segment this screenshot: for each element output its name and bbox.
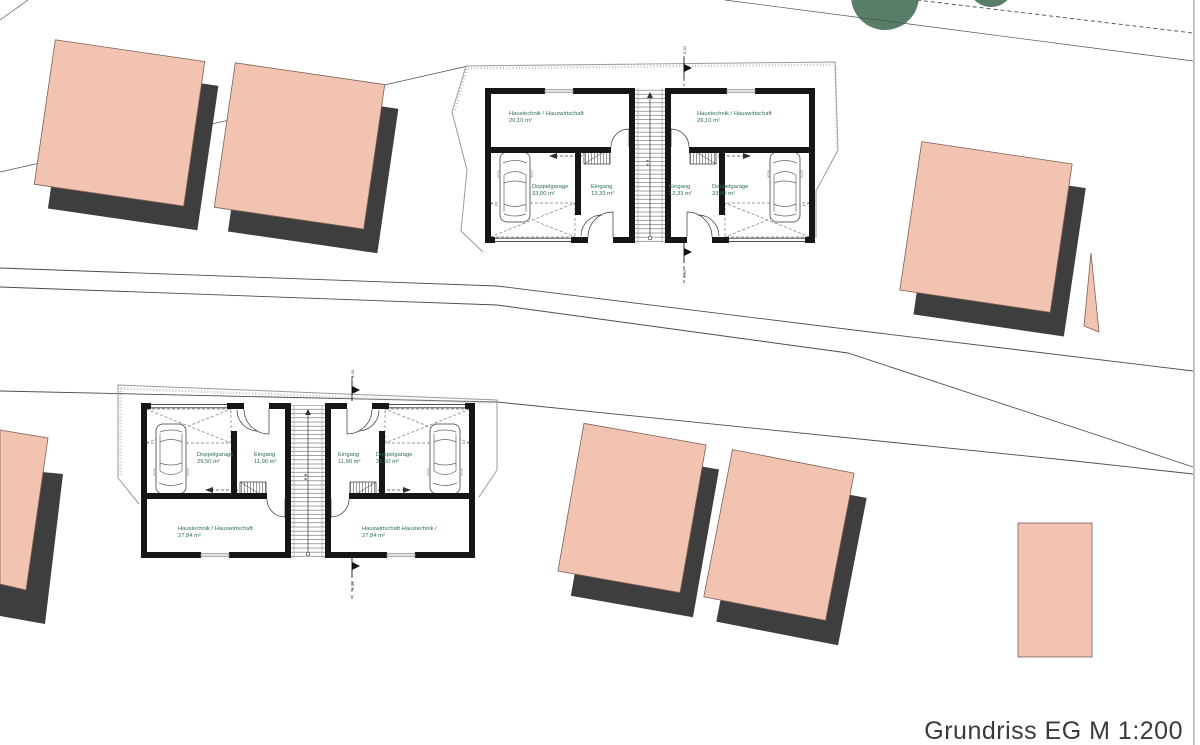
tree-icon xyxy=(968,0,1014,7)
room-area: 27,84 m² xyxy=(362,533,385,539)
section-label: S-02 xyxy=(682,269,687,278)
parcel-line-dashed xyxy=(917,0,1193,33)
central-staircase xyxy=(635,88,665,243)
room-label-entry: Eingang xyxy=(669,184,690,190)
room-area: 29,50 m² xyxy=(376,459,399,465)
room-label-utility: Haustechnik / Hauswirtschaft xyxy=(178,526,253,532)
floor-plan-bottom: S-03 S-03 Doppelgarage 29,50 m² Eingang … xyxy=(141,369,475,600)
room-label-entry: Eingang xyxy=(254,452,275,458)
tree-icon xyxy=(851,0,919,30)
room-label-utility: Haustechnik / Hauswirtschaft xyxy=(509,111,584,117)
room-label-garage: Doppelgarage xyxy=(197,452,233,458)
room-area: 29,50 m² xyxy=(197,459,220,465)
room-area: 27,84 m² xyxy=(178,533,201,539)
section-flag-icon xyxy=(684,58,692,79)
neighbor-building xyxy=(0,430,63,624)
parcel-line xyxy=(0,0,28,20)
neighbor-building xyxy=(554,423,723,617)
section-label: S-03 xyxy=(350,369,355,378)
parcel-line xyxy=(725,0,1193,61)
room-label-entry: Eingang xyxy=(338,452,359,458)
room-label-garage: Doppelgarage xyxy=(376,452,412,458)
section-label: S-02 xyxy=(682,45,687,54)
neighbor-building xyxy=(700,450,871,646)
duplex-unit-right xyxy=(325,403,475,558)
section-flag-icon xyxy=(352,380,360,401)
neighbor-building xyxy=(897,142,1089,337)
site-plan-canvas: S-02 S-02 Haustechnik / Hauswirtschaft 2… xyxy=(0,0,1200,745)
room-label-entry: Eingang xyxy=(591,184,612,190)
room-label-utility: Haustechnik / Hauswirtschaft xyxy=(697,111,772,117)
trees xyxy=(851,0,1014,30)
room-label-utility: Hauswirtschaft Haustechnik / xyxy=(362,526,437,532)
room-area: 26,10 m² xyxy=(697,118,720,124)
room-area: 26,10 m² xyxy=(509,118,532,124)
floor-plan-top: S-02 S-02 Haustechnik / Hauswirtschaft 2… xyxy=(485,45,815,283)
duplex-unit-left xyxy=(141,403,291,558)
room-area: 11,90 m² xyxy=(254,459,277,465)
section-flag-icon xyxy=(352,556,360,577)
room-area: 33,00 m² xyxy=(532,191,555,197)
room-label-garage: Doppelgarage xyxy=(712,184,748,190)
room-area: 12,33 m² xyxy=(591,191,614,197)
section-flag-icon xyxy=(684,242,692,263)
neighbor-building xyxy=(31,40,221,230)
room-area: 12,33 m² xyxy=(669,191,692,197)
neighbor-building xyxy=(1084,253,1099,332)
room-label-garage: Doppelgarage xyxy=(532,184,568,190)
room-area: 33,00 m² xyxy=(712,191,735,197)
room-area: 11,90 m² xyxy=(338,459,361,465)
drawing-title: Grundriss EG M 1:200 xyxy=(924,717,1183,745)
neighbor-building xyxy=(1018,523,1092,657)
central-staircase xyxy=(291,405,325,558)
neighbor-building xyxy=(211,63,401,253)
section-label: S-03 xyxy=(350,581,355,590)
